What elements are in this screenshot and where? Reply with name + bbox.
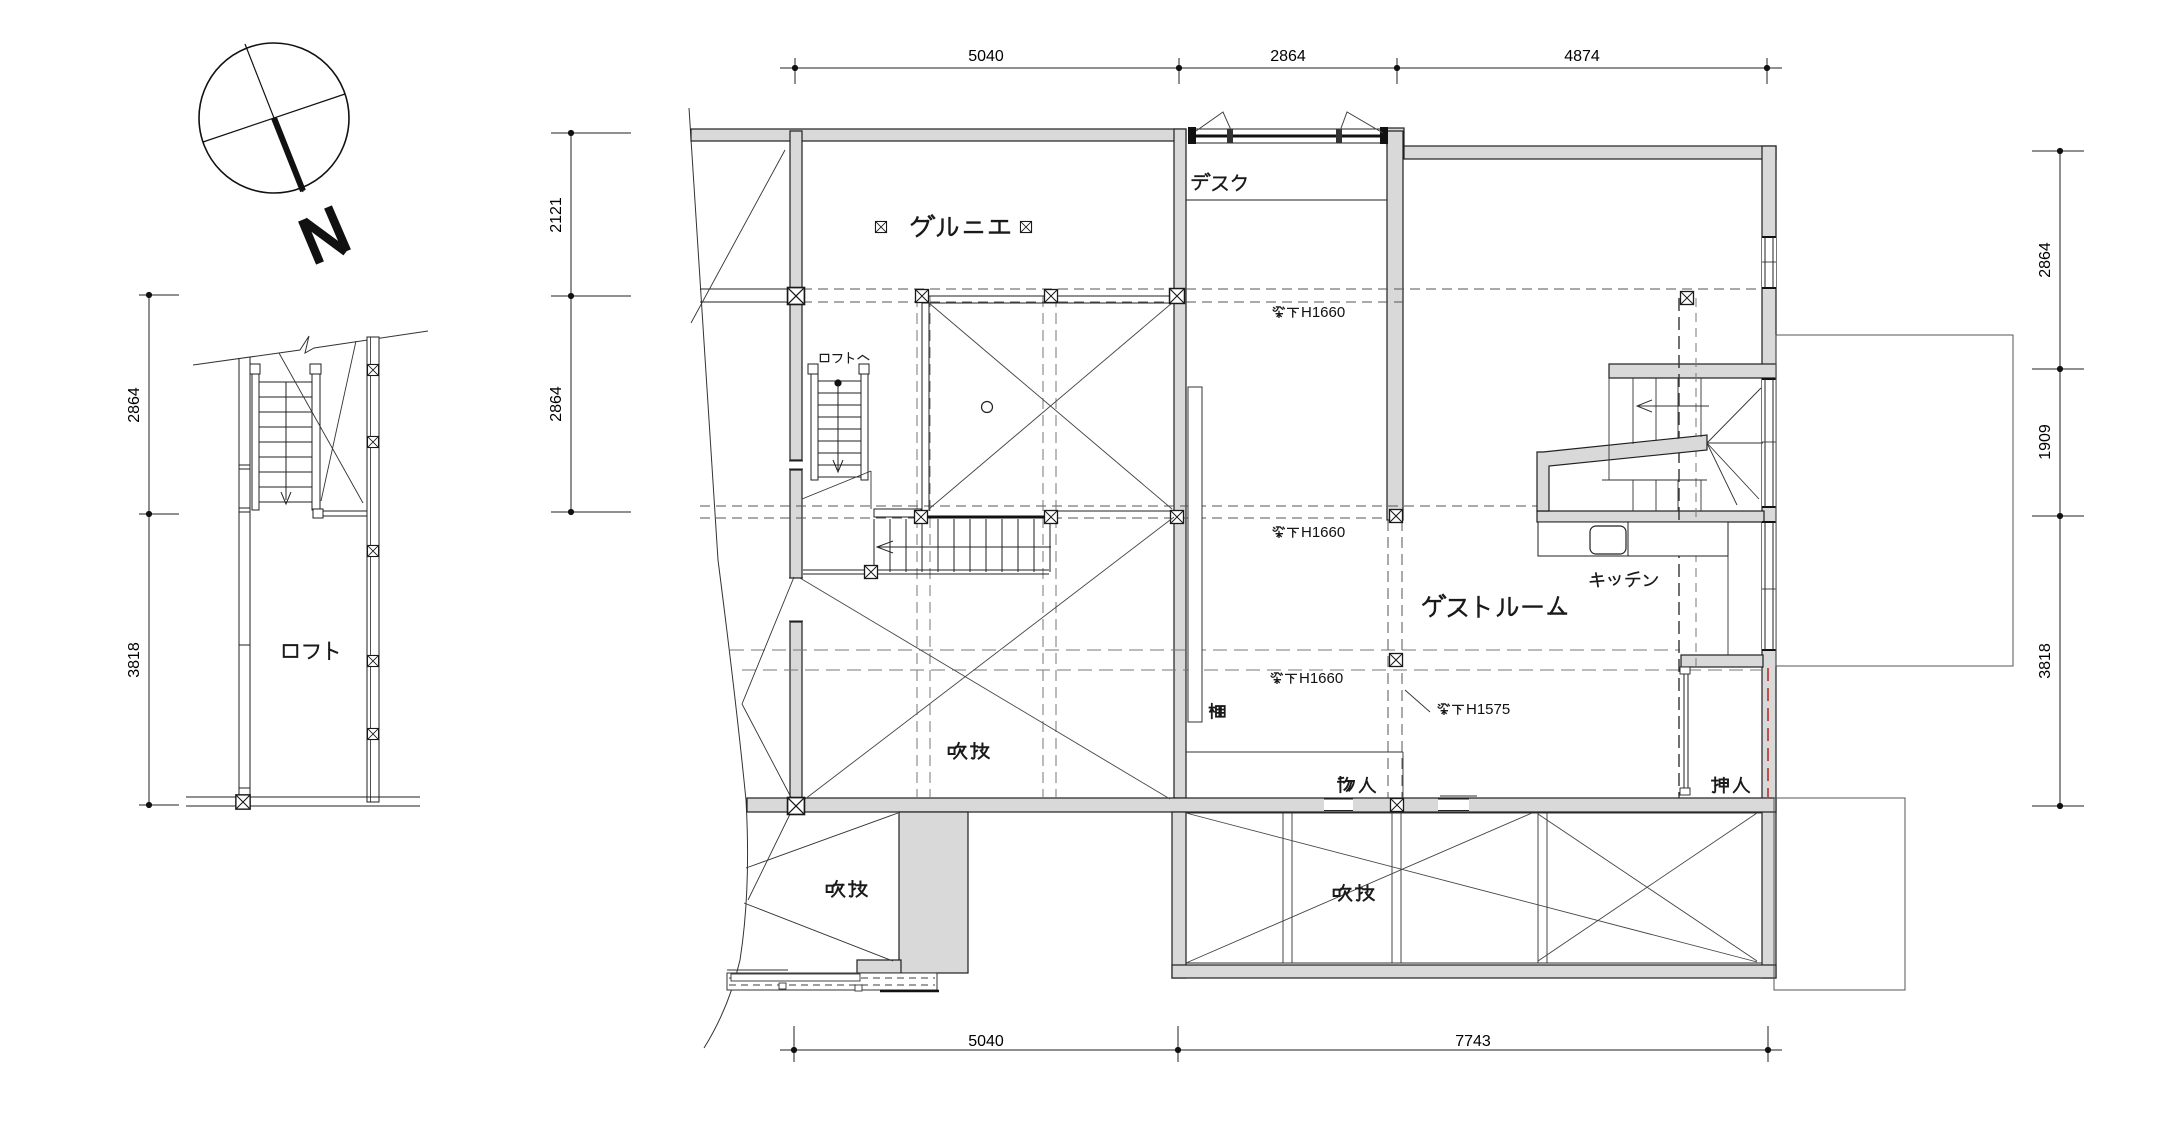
svg-text:4874: 4874	[1564, 48, 1600, 65]
svg-text:1909: 1909	[2037, 424, 2054, 460]
svg-text:2864: 2864	[1270, 48, 1306, 65]
svg-text:2864: 2864	[126, 387, 143, 423]
svg-text:H1660: H1660	[1299, 670, 1343, 687]
svg-text:7743: 7743	[1455, 1033, 1491, 1050]
svg-text:3818: 3818	[126, 642, 143, 678]
svg-text:2864: 2864	[548, 386, 565, 422]
svg-text:H1660: H1660	[1301, 524, 1345, 541]
svg-text:H1575: H1575	[1466, 701, 1510, 718]
svg-text:2121: 2121	[548, 197, 565, 233]
svg-text:5040: 5040	[968, 1033, 1004, 1050]
svg-text:2864: 2864	[2037, 242, 2054, 278]
svg-text:3818: 3818	[2037, 643, 2054, 679]
svg-text:H1660: H1660	[1301, 304, 1345, 321]
svg-text:5040: 5040	[968, 48, 1004, 65]
